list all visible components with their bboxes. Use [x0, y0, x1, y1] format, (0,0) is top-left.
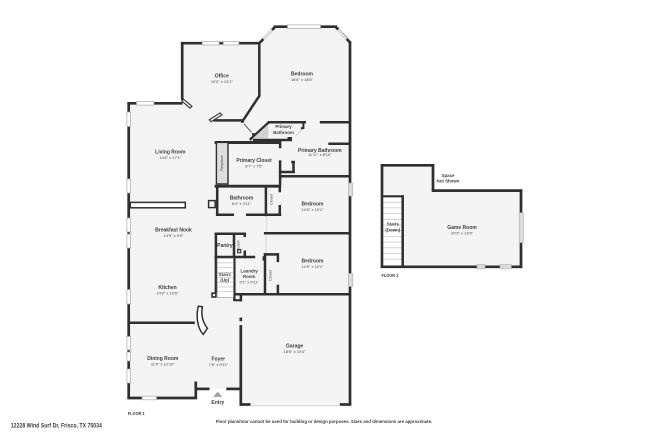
- svg-text:Closet: Closet: [268, 269, 273, 281]
- svg-text:14'9" x 10'6": 14'9" x 10'6": [157, 291, 180, 296]
- svg-text:Space: Space: [442, 173, 455, 178]
- svg-text:Laundry: Laundry: [241, 268, 259, 273]
- svg-text:Pantry: Pantry: [217, 243, 233, 249]
- svg-text:14'5" x 10'1": 14'5" x 10'1": [302, 264, 325, 269]
- svg-text:20'3" x 13'9": 20'3" x 13'9": [451, 230, 474, 235]
- svg-text:5'1" x 5'11": 5'1" x 5'11": [239, 280, 259, 285]
- svg-text:8'7" x 7'5": 8'7" x 7'5": [245, 164, 263, 169]
- svg-text:18'6" x 19'4": 18'6" x 19'4": [284, 349, 307, 354]
- svg-text:11'0" x 12'10": 11'0" x 12'10": [151, 361, 175, 366]
- svg-text:14'6" x 17'1": 14'6" x 17'1": [159, 155, 182, 160]
- svg-text:12228 Wind Surf Dr, Frisco, TX: 12228 Wind Surf Dr, Frisco, TX 75034: [11, 423, 103, 430]
- svg-text:16'6" x 18'6": 16'6" x 18'6": [291, 77, 314, 82]
- svg-text:Stairs: Stairs: [219, 272, 232, 277]
- svg-text:Closet: Closet: [236, 239, 241, 251]
- svg-text:Bathroom: Bathroom: [273, 130, 294, 135]
- svg-text:(Up): (Up): [220, 278, 229, 283]
- svg-text:11'11" x 8'10": 11'11" x 8'10": [308, 152, 332, 157]
- svg-text:Stairs: Stairs: [387, 222, 400, 227]
- svg-text:Primary: Primary: [275, 124, 292, 129]
- svg-text:(Down): (Down): [385, 227, 400, 232]
- svg-text:Not Shown: Not Shown: [437, 179, 460, 184]
- svg-text:13'2" x 13'1": 13'2" x 13'1": [211, 79, 234, 84]
- svg-text:7'6" x 9'11": 7'6" x 9'11": [209, 362, 229, 367]
- svg-text:Fireplace: Fireplace: [219, 155, 224, 171]
- svg-text:Entry: Entry: [211, 400, 224, 406]
- svg-text:FLOOR 2: FLOOR 2: [382, 272, 399, 277]
- svg-text:8'4" x 4'11": 8'4" x 4'11": [232, 201, 252, 206]
- svg-text:Room: Room: [243, 274, 256, 279]
- svg-text:14'9" x 9'9": 14'9" x 9'9": [164, 233, 184, 238]
- svg-text:14'5" x 10'1": 14'5" x 10'1": [302, 207, 325, 212]
- svg-text:Floor plans/tour cannot be use: Floor plans/tour cannot be used for buil…: [216, 419, 433, 424]
- svg-text:Closet: Closet: [268, 193, 273, 205]
- svg-text:FLOOR 1: FLOOR 1: [128, 411, 145, 416]
